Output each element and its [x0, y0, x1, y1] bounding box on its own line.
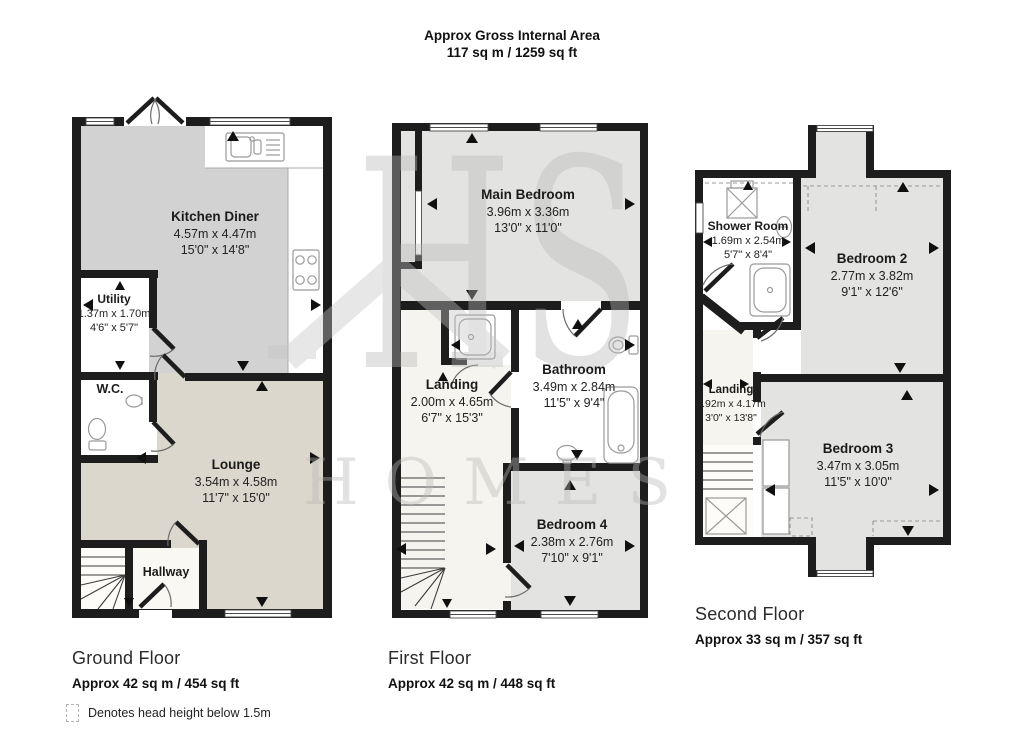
room-label-main-bedroom: Main Bedroom 3.96m x 3.36m 13'0" x 11'0"	[443, 187, 613, 237]
legend: Denotes head height below 1.5m	[66, 704, 271, 722]
room-label-bedroom-3: Bedroom 3 3.47m x 3.05m 11'5" x 10'0"	[788, 441, 928, 491]
ground-floor-title: Ground Floor Approx 42 sq m / 454 sq ft	[72, 648, 239, 691]
room-label-bedroom-4: Bedroom 4 2.38m x 2.76m 7'10" x 9'1"	[507, 517, 637, 567]
floorplan-page: Approx Gross Internal Area 117 sq m / 12…	[0, 0, 1024, 731]
page-title: Approx Gross Internal Area 117 sq m / 12…	[352, 27, 672, 61]
head-height-legend-icon	[66, 704, 79, 722]
room-label-landing-second: Landing 0.92m x 4.17m 3'0" x 13'8"	[689, 383, 773, 425]
room-label-bathroom: Bathroom 3.49m x 2.84m 11'5" x 9'4"	[509, 362, 639, 412]
room-label-landing-first: Landing 2.00m x 4.65m 6'7" x 15'3"	[397, 377, 507, 427]
gross-area-value: 117 sq m / 1259 sq ft	[352, 44, 672, 61]
second-floor-title: Second Floor Approx 33 sq m / 357 sq ft	[695, 604, 862, 647]
room-label-lounge: Lounge 3.54m x 4.58m 11'7" x 15'0"	[156, 457, 316, 507]
legend-text: Denotes head height below 1.5m	[88, 706, 271, 720]
room-label-hallway: Hallway	[126, 564, 206, 581]
gross-area-title: Approx Gross Internal Area	[352, 27, 672, 44]
ground-floor-plan	[60, 85, 350, 635]
ground-floor-rooms	[81, 126, 323, 609]
second-floor-plan	[688, 105, 970, 605]
room-label-shower-room: Shower Room 1.69m x 2.54m 5'7" x 8'4"	[700, 219, 796, 263]
room-label-kitchen-diner: Kitchen Diner 4.57m x 4.47m 15'0" x 14'8…	[135, 209, 295, 259]
room-label-bedroom-2: Bedroom 2 2.77m x 3.82m 9'1" x 12'6"	[802, 251, 942, 301]
first-floor-title: First Floor Approx 42 sq m / 448 sq ft	[388, 648, 555, 691]
room-label-wc: W.C.	[80, 381, 140, 398]
room-label-utility: Utility 1.37m x 1.70m 4'6" x 5'7"	[69, 292, 159, 336]
